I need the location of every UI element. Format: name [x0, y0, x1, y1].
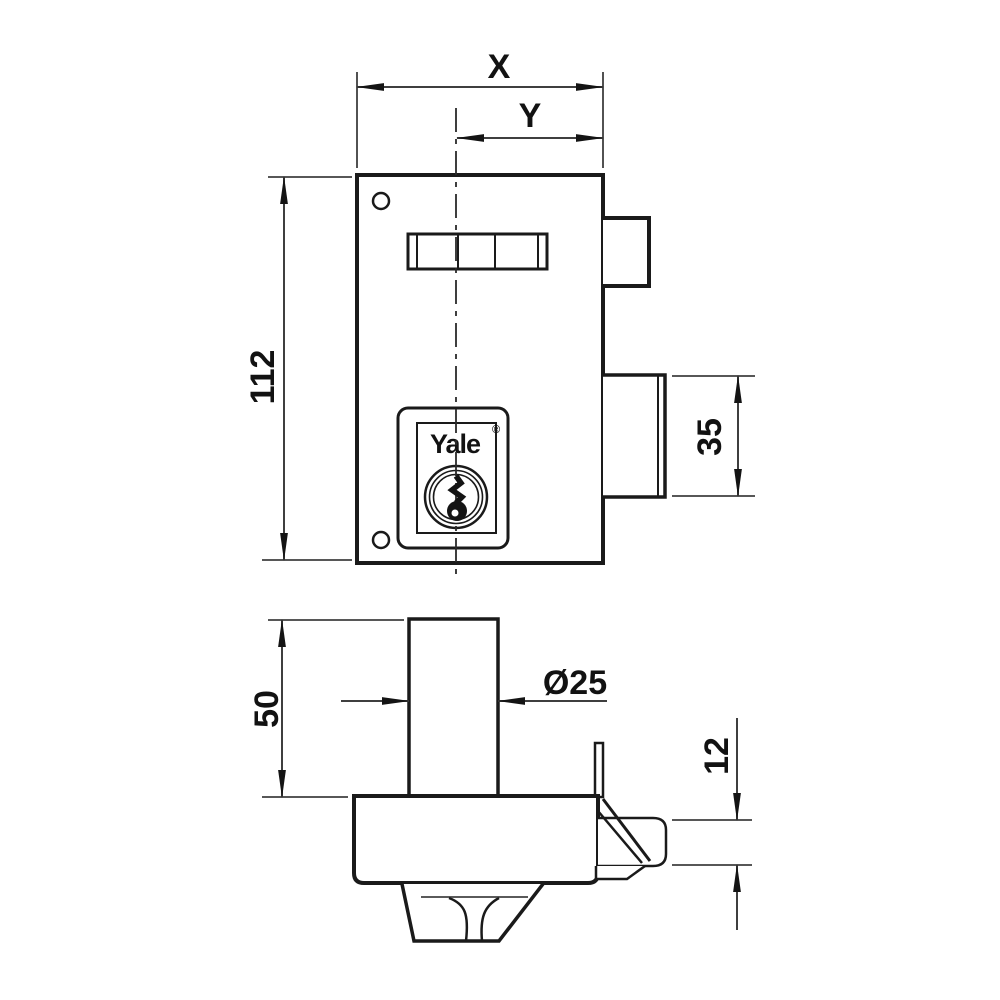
screw-hole-top — [373, 193, 389, 209]
lock-top-view — [354, 619, 666, 941]
dimension-12-label: 12 — [698, 737, 736, 775]
latch-bolt-side — [598, 818, 666, 866]
dimension-x: X — [357, 48, 603, 168]
dimension-diameter-label: Ø25 — [543, 664, 607, 702]
dimension-y: Y — [457, 97, 603, 138]
key-bow-hole — [452, 510, 459, 517]
dimension-50-label: 50 — [248, 690, 286, 728]
registered-trademark-icon: ® — [492, 424, 500, 436]
lock-front-view: Yale ® — [357, 108, 665, 576]
bracket-outline — [402, 884, 543, 941]
dimension-y-label: Y — [519, 97, 542, 135]
dimension-x-label: X — [488, 48, 511, 86]
dimension-12: 12 — [672, 718, 752, 930]
lock-body-top — [354, 796, 598, 883]
lock-technical-drawing: Yale ® — [0, 0, 1000, 1000]
latch-window-frame — [408, 234, 547, 269]
latch-assembly-side — [596, 799, 666, 879]
technical-drawing-page: Yale ® — [0, 0, 1000, 1000]
yale-plate: Yale ® — [398, 408, 508, 548]
dimension-112-label: 112 — [244, 350, 282, 405]
dimension-35-label: 35 — [691, 418, 729, 456]
latch-window — [408, 234, 547, 269]
mounting-bracket — [402, 884, 543, 941]
cylinder-barrel — [409, 619, 498, 797]
screw-hole-bottom — [373, 532, 389, 548]
latch-guide-step — [596, 866, 645, 879]
latch-bolt-front — [603, 218, 649, 286]
dimension-112: 112 — [244, 177, 352, 560]
deadbolt-front — [603, 375, 665, 497]
dimension-50: 50 — [248, 620, 404, 797]
faceplate-post — [595, 743, 603, 797]
dimension-35: 35 — [672, 376, 755, 496]
